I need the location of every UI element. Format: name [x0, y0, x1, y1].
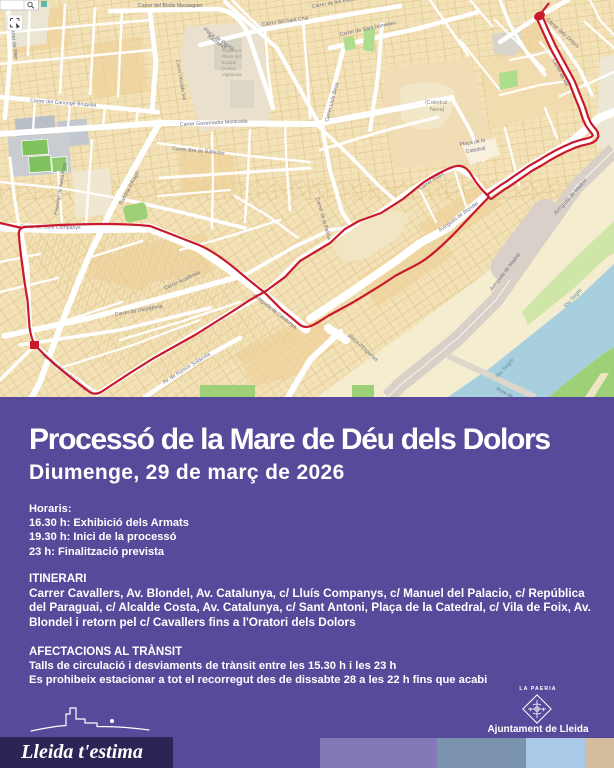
svg-text:Vigilancia: Vigilancia	[222, 72, 242, 77]
svg-text:Nova): Nova)	[430, 107, 445, 113]
svg-text:(Catedral: (Catedral	[425, 100, 447, 106]
svg-text:(Arxiu): (Arxiu)	[222, 66, 236, 71]
svg-text:Placa del: Placa del	[222, 54, 241, 59]
svg-text:Equips: Equips	[222, 60, 237, 65]
svg-text:Carrer del Bisbe Messeguer: Carrer del Bisbe Messeguer	[138, 3, 203, 9]
svg-text:Estacions: Estacions	[222, 48, 243, 53]
